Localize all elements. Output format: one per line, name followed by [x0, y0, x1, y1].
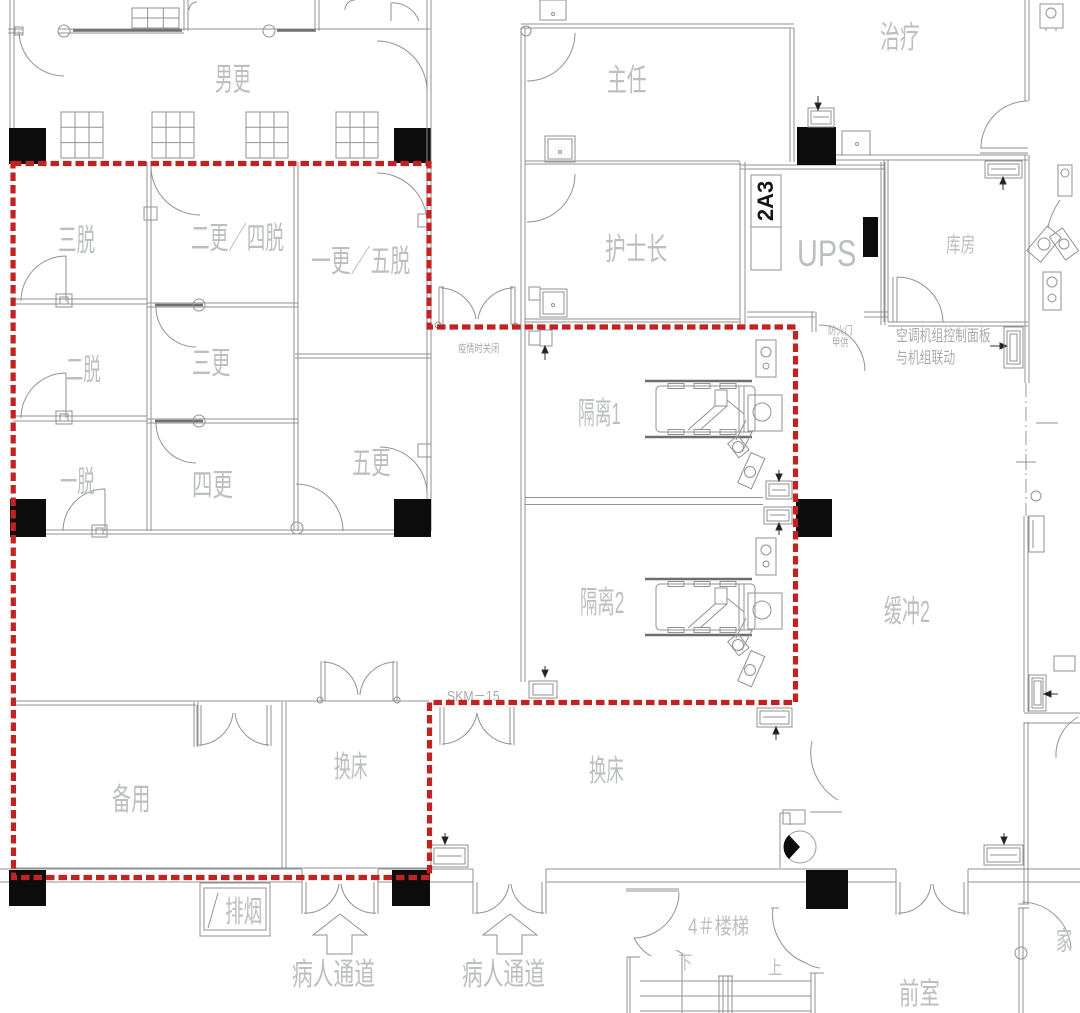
svg-text:备用: 备用	[112, 782, 150, 817]
svg-text:空调机组控制面板: 空调机组控制面板	[896, 326, 991, 344]
svg-text:换床: 换床	[589, 754, 624, 788]
svg-text:库房: 库房	[946, 233, 975, 256]
svg-text:上: 上	[768, 957, 782, 978]
svg-text:治疗: 治疗	[880, 19, 920, 55]
svg-text:与机组联动: 与机组联动	[896, 348, 955, 366]
svg-text:甲供: 甲供	[832, 335, 849, 350]
svg-text:UPS: UPS	[797, 234, 856, 275]
svg-text:隔离2: 隔离2	[580, 586, 624, 621]
svg-text:缓冲2: 缓冲2	[884, 595, 930, 629]
svg-text:病人通道: 病人通道	[292, 957, 375, 992]
svg-text:2A3: 2A3	[753, 181, 778, 221]
svg-text:下: 下	[678, 952, 692, 973]
svg-text:病人通道: 病人通道	[462, 957, 545, 992]
svg-text:家: 家	[1056, 926, 1072, 956]
svg-text:男更: 男更	[215, 63, 251, 98]
svg-text:隔离1: 隔离1	[578, 397, 621, 432]
svg-text:三更: 三更	[192, 348, 230, 382]
svg-text:护士长: 护士长	[605, 232, 667, 267]
svg-text:二更／四脱: 二更／四脱	[191, 222, 284, 256]
svg-text:排烟: 排烟	[225, 896, 262, 930]
svg-text:五更: 五更	[352, 448, 390, 482]
svg-text:4＃楼梯: 4＃楼梯	[688, 915, 749, 940]
svg-text:一脱: 一脱	[60, 465, 95, 499]
svg-text:主任: 主任	[607, 62, 647, 98]
svg-text:四更: 四更	[192, 468, 233, 503]
svg-text:换床: 换床	[334, 751, 368, 784]
svg-text:三脱: 三脱	[58, 224, 95, 258]
svg-text:二脱: 二脱	[66, 353, 101, 387]
svg-text:前室: 前室	[899, 977, 940, 1011]
svg-text:一更／五脱: 一更／五脱	[311, 243, 410, 279]
svg-text:疫情时关闭: 疫情时关闭	[458, 341, 499, 356]
svg-text:防火门: 防火门	[828, 323, 853, 338]
